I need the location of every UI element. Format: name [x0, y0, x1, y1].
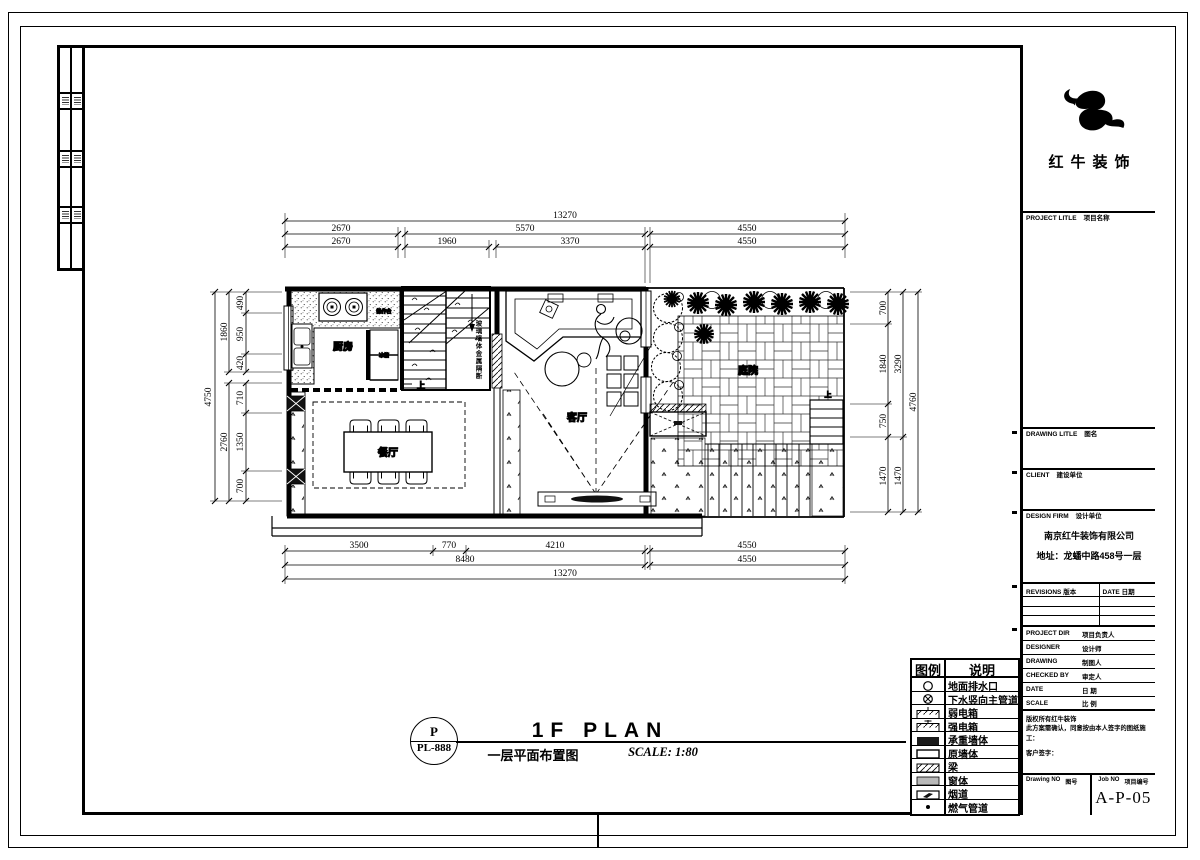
legend-row: 强电箱 — [912, 719, 1018, 733]
weak-power-box-icon — [913, 707, 943, 719]
sheet-scale: SCALE: 1:80 — [608, 745, 718, 760]
tick — [1012, 431, 1017, 434]
brand-name: 红牛装饰 — [1041, 151, 1136, 172]
beam-hatch — [492, 334, 502, 388]
courtyard: 上 庭院 — [650, 291, 849, 516]
legend-row: 下水竖向主管道 — [912, 692, 1018, 706]
flue-icon — [913, 788, 943, 800]
ottoman — [577, 353, 591, 367]
svg-text:1840: 1840 — [879, 354, 889, 373]
sheet-title-cn: 一层平面布置图 — [468, 745, 598, 764]
svg-text:2760: 2760 — [220, 432, 230, 451]
title-block: 红牛装饰 PROJECT LITLE项目名称 DRAWING LITLE图名 C… — [1020, 45, 1155, 815]
legend-row: 烟道 — [912, 786, 1018, 800]
svg-text:4550: 4550 — [738, 555, 757, 565]
revisions-table: REVISIONS 版本 DATE 日期 — [1023, 584, 1155, 627]
legend-row: 弱电箱 — [912, 705, 1018, 719]
garden-up-label: 上 — [825, 390, 832, 399]
bearing-wall-icon — [913, 734, 943, 746]
row-project-dir: PROJECT DIR项目负责人 — [1023, 627, 1155, 641]
row-checked-by: CHECKED BY审定人 — [1023, 669, 1155, 683]
row-date: DATE日 期 — [1023, 683, 1155, 697]
grass-left — [651, 438, 705, 516]
sewer-riser-icon — [913, 693, 943, 705]
living-label: 客厅 — [566, 411, 587, 424]
legend-row: 地面排水口 — [912, 678, 1018, 692]
dining-label: 餐厅 — [377, 446, 398, 459]
svg-text:13270: 13270 — [553, 569, 577, 579]
sheet-number: A-P-05 — [1095, 788, 1152, 808]
courtyard-label: 庭院 — [738, 364, 758, 377]
logo-section: 红牛装饰 — [1023, 45, 1155, 213]
svg-text:4550: 4550 — [738, 541, 757, 551]
beam-icon — [913, 761, 943, 773]
svg-text:5570: 5570 — [516, 224, 535, 234]
original-wall-icon — [913, 747, 943, 759]
svg-text:3290: 3290 — [894, 354, 904, 373]
fridge-label: 冰箱 — [379, 352, 389, 359]
bull-logo — [1050, 85, 1128, 143]
legend-header: 图例 说明 — [912, 660, 1018, 678]
tick — [1012, 471, 1017, 474]
legend-row: 梁 — [912, 759, 1018, 773]
svg-text:420: 420 — [236, 356, 246, 371]
design-firm-section: DESIGN FIRM设计单位 南京红牛装饰有限公司 地址：龙蟠中路458号一层 — [1023, 511, 1155, 584]
sofa — [506, 291, 641, 361]
svg-text:710: 710 — [236, 391, 246, 406]
tick — [1012, 628, 1017, 631]
wall-nib — [366, 330, 370, 380]
stair-annotation: 玻璃墙体金属隔断 — [472, 320, 481, 380]
svg-text:490: 490 — [236, 296, 246, 311]
drain-circle-icon — [913, 680, 943, 692]
kitchen-label: 厨房 — [333, 340, 353, 353]
svg-text:950: 950 — [236, 327, 246, 342]
drawing-sheet: 13270 2670 5570 4550 2670 1960 3370 4550… — [0, 0, 1200, 860]
kitchen: 操作台 冰箱 厨房 — [291, 291, 400, 384]
svg-text:4550: 4550 — [738, 237, 757, 247]
gas-pipe-icon — [913, 801, 943, 813]
svg-text:770: 770 — [442, 541, 457, 551]
legend-row: 燃气管道 — [912, 800, 1018, 814]
tick — [1012, 511, 1017, 514]
dining-room: 餐厅 — [287, 392, 465, 516]
row-designer: DESIGNER设计师 — [1023, 641, 1155, 655]
svg-text:2670: 2670 — [332, 237, 351, 247]
stove — [319, 293, 367, 321]
svg-text:1470: 1470 — [894, 466, 904, 485]
svg-text:8480: 8480 — [456, 555, 475, 565]
svg-text:4760: 4760 — [909, 392, 919, 411]
firm-address: 地址：龙蟠中路458号一层 — [1023, 549, 1155, 562]
counter-label: 操作台 — [376, 308, 391, 315]
client-section: CLIENT建设单位 — [1023, 470, 1155, 511]
svg-text:4750: 4750 — [204, 387, 214, 406]
svg-text:1860: 1860 — [220, 322, 230, 341]
svg-text:3500: 3500 — [350, 541, 369, 551]
svg-text:1350: 1350 — [236, 432, 246, 451]
project-section: PROJECT LITLE项目名称 — [1023, 213, 1155, 429]
legend: 图例 说明 地面排水口 下水竖向主管道 弱电箱 强电箱 承重墙体 原墙体 — [910, 658, 1020, 816]
svg-text:3370: 3370 — [561, 237, 580, 247]
drawing-bubble: P PL-888 — [410, 717, 458, 765]
coffee-table — [545, 352, 579, 386]
copyright-notes: 版权所有红牛装饰 此方案需确认，同意按由本人签字的图纸施工： 客户签字： — [1023, 711, 1155, 775]
svg-text:4210: 4210 — [546, 541, 565, 551]
drawing-title-section: DRAWING LITLE图名 — [1023, 429, 1155, 470]
legend-row: 承重墙体 — [912, 732, 1018, 746]
sheet-title-en: 1F PLAN — [500, 719, 700, 743]
window-icon — [913, 774, 943, 786]
garden-stairs — [810, 400, 843, 444]
svg-text:2670: 2670 — [332, 224, 351, 234]
firm-name: 南京红牛装饰有限公司 — [1023, 529, 1155, 542]
svg-text:750: 750 — [879, 414, 889, 429]
cabinet-grid — [607, 356, 638, 406]
svg-text:1470: 1470 — [879, 466, 889, 485]
svg-text:13270: 13270 — [553, 211, 577, 221]
strong-power-box-icon — [913, 720, 943, 732]
legend-row: 原墙体 — [912, 746, 1018, 760]
sheet-number-section: Drawing NO图号 Job NO项目编号 A-P-05 — [1023, 775, 1155, 815]
svg-text:700: 700 — [879, 301, 889, 316]
svg-text:700: 700 — [236, 479, 246, 494]
svg-text:4550: 4550 — [738, 224, 757, 234]
plant-strip — [503, 390, 520, 514]
grass-right — [812, 444, 843, 516]
svg-text:1960: 1960 — [438, 237, 457, 247]
row-scale: SCALE比 例 — [1023, 697, 1155, 711]
tick — [1012, 585, 1017, 588]
row-drawing: DRAWING制图人 — [1023, 655, 1155, 669]
stairs-up-label: 上 — [417, 380, 425, 390]
legend-row: 窗体 — [912, 773, 1018, 787]
